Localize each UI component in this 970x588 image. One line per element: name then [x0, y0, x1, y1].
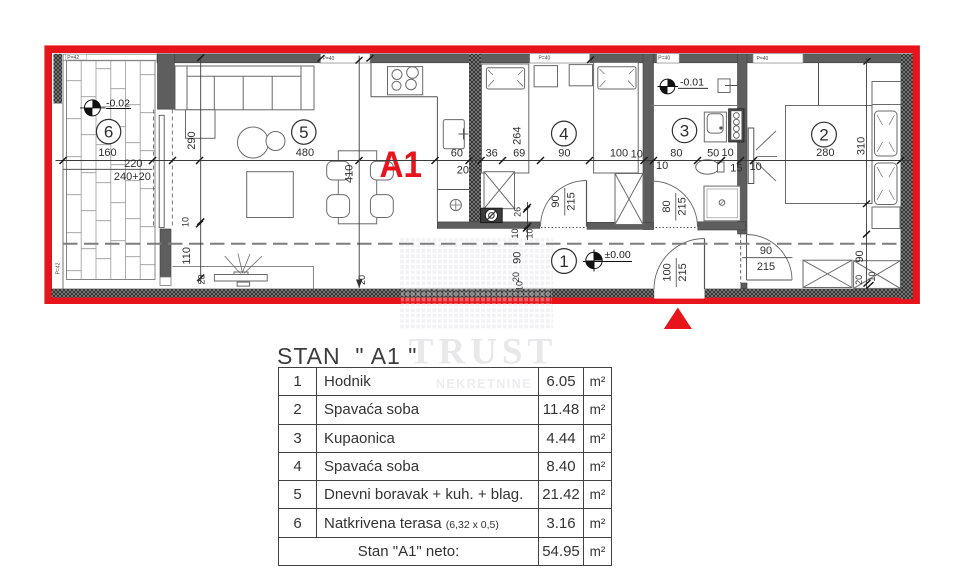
svg-text:220: 220 — [124, 158, 142, 170]
svg-text:50: 50 — [707, 148, 719, 160]
svg-text:-0.01: -0.01 — [680, 76, 704, 88]
svg-text:100: 100 — [662, 263, 674, 281]
svg-text:215: 215 — [757, 261, 775, 273]
svg-text:69: 69 — [513, 148, 525, 160]
svg-text:3: 3 — [680, 122, 689, 141]
svg-text:36: 36 — [486, 148, 498, 160]
svg-text:10: 10 — [510, 228, 520, 238]
svg-text:P=40: P=40 — [658, 56, 670, 62]
svg-text:-0.02: -0.02 — [106, 98, 130, 110]
svg-text:4: 4 — [559, 125, 568, 144]
svg-text:±0.00: ±0.00 — [605, 249, 631, 261]
svg-text:90: 90 — [511, 252, 523, 264]
svg-text:10: 10 — [181, 217, 191, 227]
svg-text:10: 10 — [721, 147, 733, 159]
svg-text:26: 26 — [512, 207, 522, 217]
svg-text:100: 100 — [610, 148, 628, 160]
svg-text:310: 310 — [856, 137, 868, 155]
svg-text:P=42: P=42 — [56, 262, 62, 274]
svg-text:215: 215 — [566, 192, 578, 210]
svg-text:110: 110 — [181, 247, 193, 265]
svg-text:280: 280 — [816, 147, 834, 159]
svg-text:1: 1 — [559, 252, 568, 271]
svg-text:90: 90 — [760, 245, 772, 257]
svg-text:A1: A1 — [380, 144, 423, 185]
svg-text:10: 10 — [867, 271, 877, 281]
svg-text:5: 5 — [299, 123, 308, 142]
svg-text:215: 215 — [677, 263, 689, 281]
svg-text:160: 160 — [98, 147, 116, 159]
svg-text:20: 20 — [511, 272, 521, 282]
svg-text:P=40: P=40 — [323, 56, 335, 62]
svg-text:2: 2 — [819, 126, 828, 145]
svg-text:10: 10 — [656, 160, 668, 172]
svg-text:20: 20 — [357, 275, 367, 285]
svg-text:80: 80 — [670, 148, 682, 160]
svg-text:90: 90 — [558, 148, 570, 160]
svg-text:90: 90 — [854, 250, 866, 262]
svg-text:10: 10 — [525, 228, 535, 238]
svg-text:20: 20 — [854, 275, 864, 285]
svg-text:290: 290 — [186, 131, 198, 149]
svg-text:264: 264 — [511, 127, 523, 145]
svg-text:215: 215 — [677, 197, 689, 215]
svg-text:6: 6 — [104, 123, 113, 142]
svg-text:90: 90 — [550, 195, 562, 207]
svg-text:10: 10 — [631, 149, 643, 161]
svg-text:15: 15 — [730, 163, 742, 175]
svg-text:20: 20 — [457, 165, 469, 177]
svg-text:240+20: 240+20 — [114, 171, 151, 183]
svg-text:480: 480 — [296, 147, 314, 159]
svg-text:410: 410 — [344, 165, 356, 183]
svg-text:60: 60 — [451, 148, 463, 160]
svg-text:20: 20 — [197, 274, 207, 284]
svg-text:P=40: P=40 — [757, 56, 769, 62]
svg-text:P=40: P=40 — [539, 56, 551, 62]
svg-text:80: 80 — [661, 200, 673, 212]
svg-text:P=42: P=42 — [67, 55, 79, 61]
svg-text:10: 10 — [749, 161, 761, 173]
